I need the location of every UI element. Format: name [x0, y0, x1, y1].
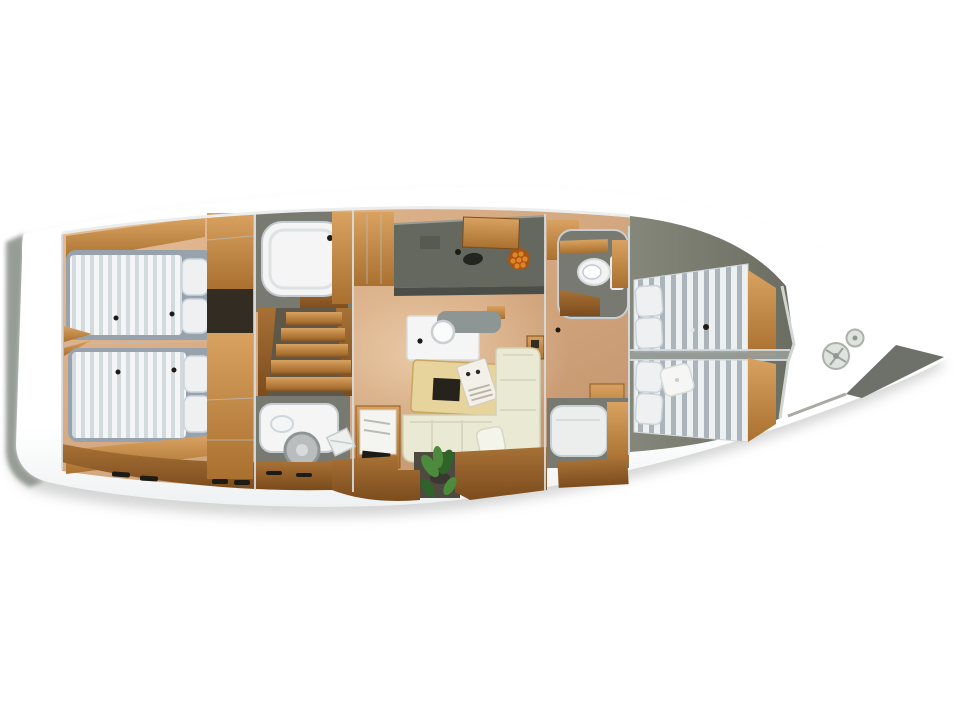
button-detail	[172, 368, 177, 373]
pillow	[635, 393, 663, 425]
berth-cabinet	[607, 402, 629, 462]
canvas	[0, 0, 960, 720]
pillow	[184, 396, 210, 432]
pillow	[182, 259, 208, 295]
overhead-locker	[462, 217, 519, 249]
aft-cabin-cabinet-column	[207, 213, 253, 479]
shower-room	[256, 212, 352, 312]
striped-mattress	[72, 352, 186, 438]
fruit-bowl	[508, 248, 530, 270]
pen-detail	[417, 338, 422, 343]
toilet-seat	[583, 265, 601, 279]
button-detail	[114, 316, 119, 321]
button-detail	[170, 312, 175, 317]
faucet	[455, 249, 461, 255]
pillow	[184, 356, 210, 392]
wet-locker	[332, 212, 352, 304]
cushion-button	[675, 378, 679, 382]
cooktop	[420, 236, 440, 249]
galley	[354, 212, 545, 296]
berth-drawer	[557, 458, 628, 488]
cabinet-recess	[531, 340, 539, 348]
head-side-cabinet	[612, 240, 628, 288]
pillow	[635, 317, 663, 348]
companionway-stairs	[258, 308, 352, 396]
striped-mattress	[70, 255, 182, 335]
item-detail	[690, 328, 695, 333]
pillow	[635, 361, 663, 392]
button-detail	[116, 370, 121, 375]
sunken-tray	[432, 378, 460, 401]
windlass-disc-large	[823, 343, 849, 369]
drawer-handle	[266, 471, 282, 475]
yacht-floorplan-rendering	[0, 0, 960, 720]
upper-cabinet	[207, 213, 253, 289]
pillow	[635, 285, 663, 317]
forward-head	[547, 220, 628, 318]
vanity-top	[560, 239, 608, 254]
round-stool	[432, 321, 454, 343]
forward-single-berth	[547, 398, 629, 488]
aft-cabin-port	[66, 217, 214, 340]
cabin-doorway	[207, 289, 253, 333]
forward-cabin-divider	[630, 350, 790, 360]
door-handle	[556, 328, 561, 333]
pillow	[182, 299, 208, 333]
item-detail	[703, 324, 709, 330]
drawer-handle	[296, 473, 312, 477]
forward-cabin-starboard	[634, 358, 776, 442]
lower-cabinet	[207, 333, 253, 479]
forward-cabin-port	[634, 264, 776, 356]
drawer-front	[256, 462, 334, 489]
berth-mattress	[551, 406, 607, 456]
hatch-center	[296, 444, 308, 456]
galley-locker	[354, 212, 394, 286]
windlass-disc-small	[847, 330, 864, 347]
